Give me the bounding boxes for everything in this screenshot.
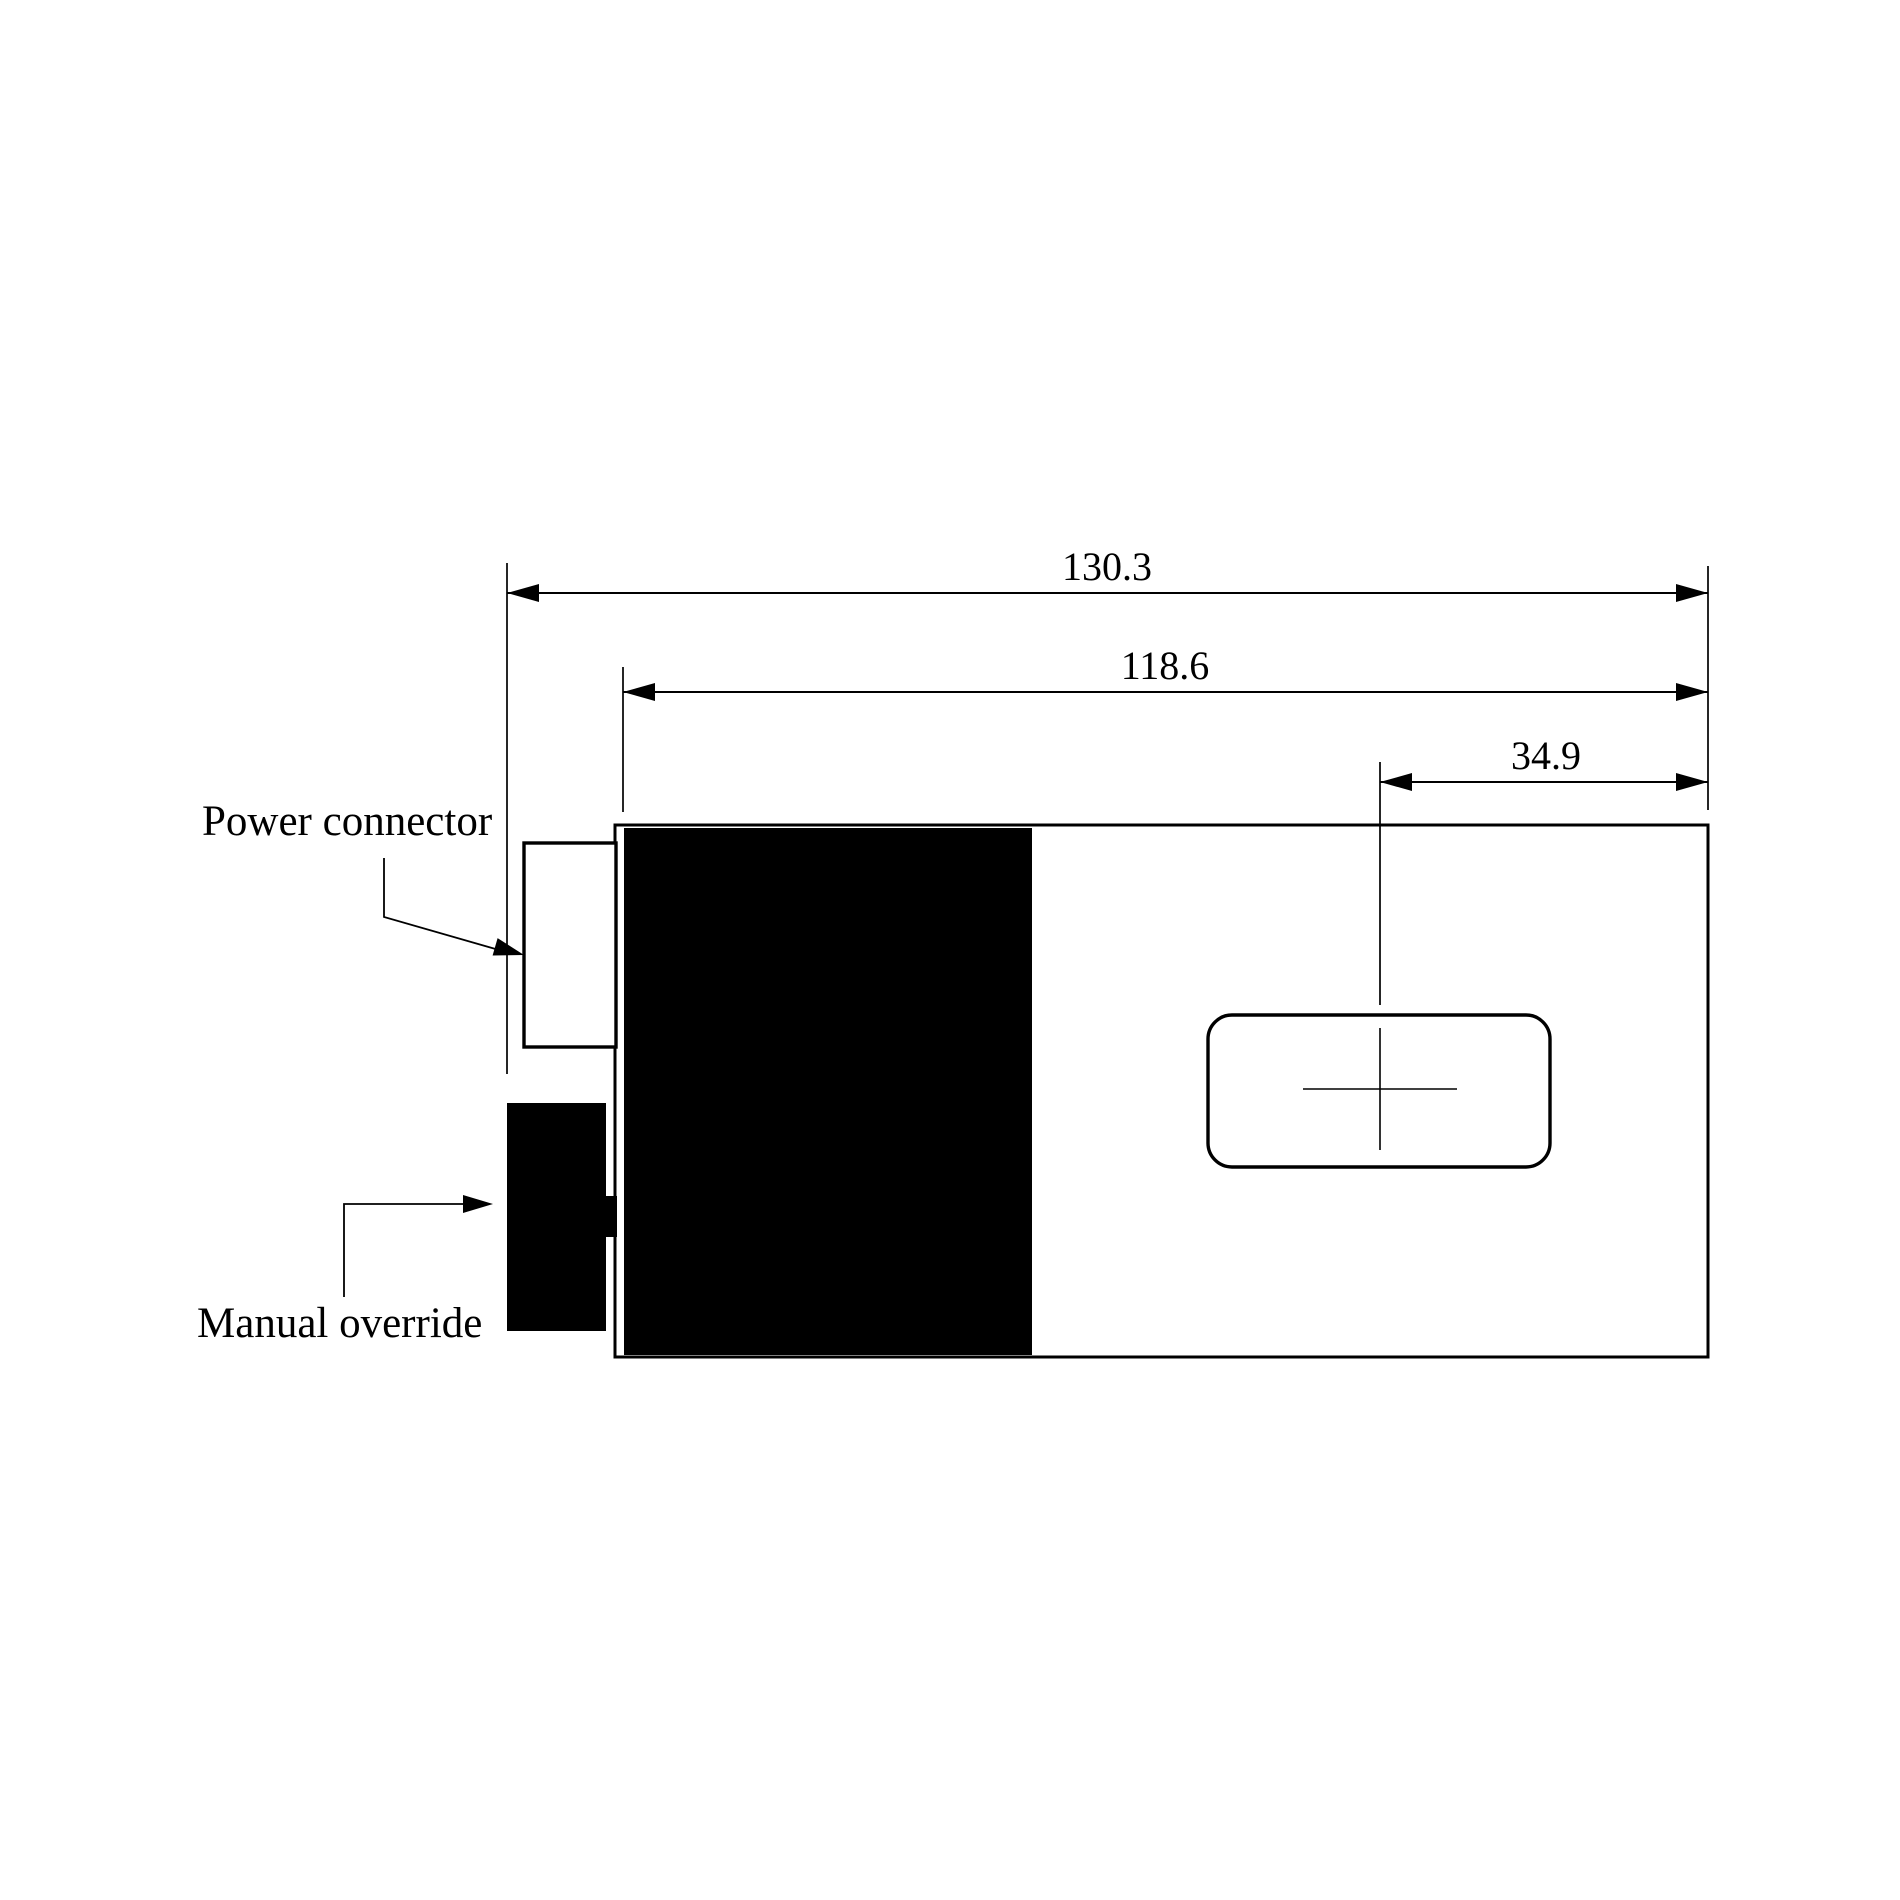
manual-override-box bbox=[507, 1103, 606, 1331]
arrowhead-left-icon bbox=[507, 584, 539, 602]
power-connector-label: Power connector bbox=[202, 798, 492, 845]
leader-arrowhead-icon bbox=[463, 1195, 493, 1213]
manual-override-shaft bbox=[606, 1196, 617, 1237]
arrowhead-right-icon bbox=[1676, 584, 1708, 602]
dimension-label-slot-offset: 34.9 bbox=[1511, 733, 1581, 778]
callout-power-connector: Power connector bbox=[202, 798, 524, 956]
actuator-motor-section bbox=[624, 828, 1032, 1355]
dimension-overall-length: 130.3 bbox=[507, 544, 1708, 602]
dimension-label-overall-length: 130.3 bbox=[1062, 544, 1152, 589]
dimension-slot-offset: 34.9 bbox=[1380, 733, 1708, 791]
power-connector-box bbox=[524, 843, 616, 1047]
arrowhead-left-icon bbox=[623, 683, 655, 701]
arrowhead-right-icon bbox=[1676, 683, 1708, 701]
dimension-label-body-length: 118.6 bbox=[1121, 643, 1210, 688]
drawing-canvas: 130.3 118.6 34.9 Power connector Manual … bbox=[0, 0, 1900, 1900]
callout-manual-override: Manual override bbox=[197, 1195, 493, 1347]
power-connector-leader-line bbox=[384, 858, 499, 950]
manual-override-leader-line bbox=[344, 1204, 465, 1297]
manual-override-label: Manual override bbox=[197, 1300, 482, 1347]
arrowhead-right-icon bbox=[1676, 773, 1708, 791]
dimension-body-length: 118.6 bbox=[623, 643, 1708, 701]
actuator-dimension-drawing: 130.3 118.6 34.9 Power connector Manual … bbox=[0, 0, 1900, 1900]
arrowhead-left-icon bbox=[1380, 773, 1412, 791]
leader-arrowhead-icon bbox=[493, 938, 524, 955]
